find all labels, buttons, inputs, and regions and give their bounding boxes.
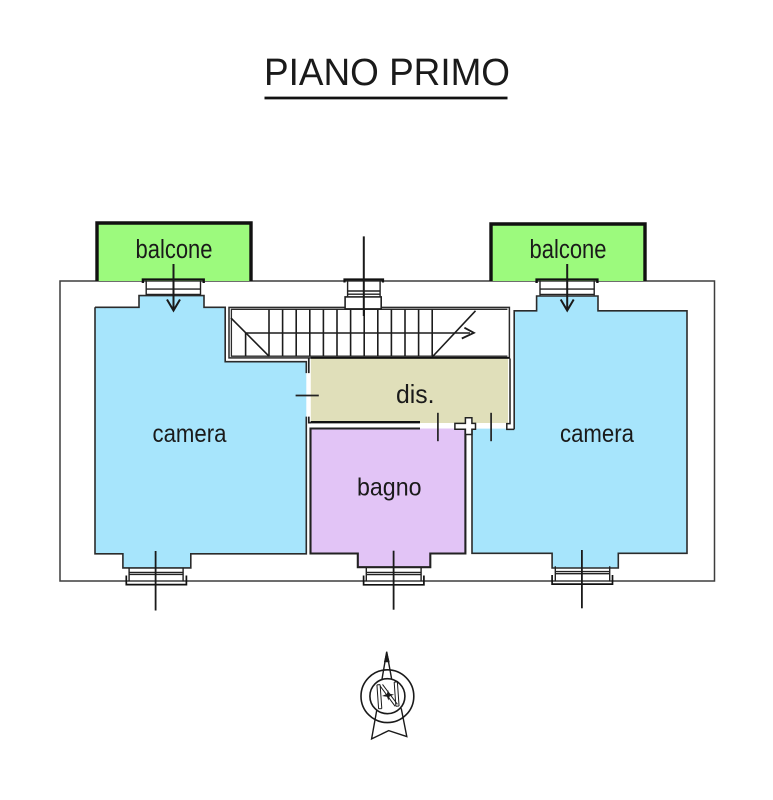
- svg-text:camera: camera: [153, 420, 227, 448]
- svg-text:balcone: balcone: [136, 236, 213, 264]
- svg-text:PIANO PRIMO: PIANO PRIMO: [264, 51, 510, 94]
- svg-text:bagno: bagno: [357, 474, 422, 502]
- svg-text:balcone: balcone: [530, 236, 607, 264]
- svg-text:camera: camera: [560, 420, 634, 448]
- svg-text:dis.: dis.: [396, 379, 435, 409]
